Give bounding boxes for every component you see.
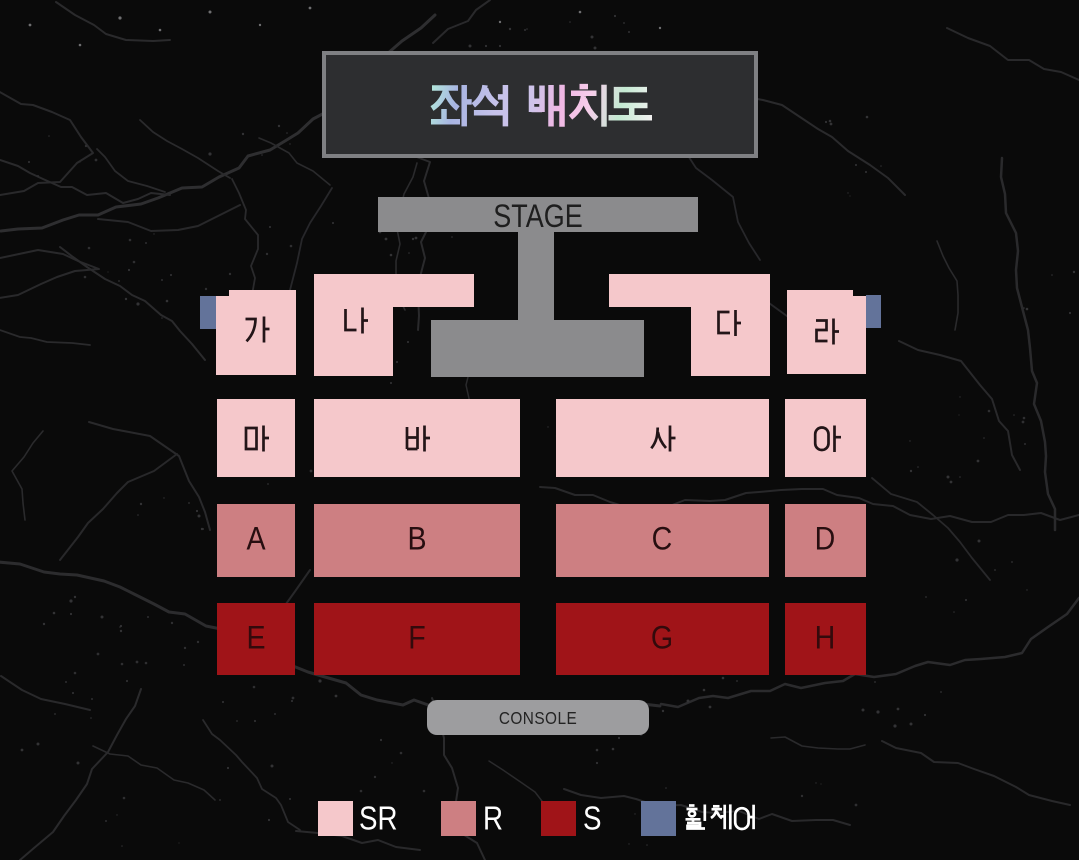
svg-text:B: B xyxy=(407,521,426,557)
svg-text:STAGE: STAGE xyxy=(493,199,582,235)
svg-text:C: C xyxy=(652,521,673,557)
svg-text:H: H xyxy=(815,620,836,656)
svg-text:SR: SR xyxy=(359,800,398,837)
svg-text:R: R xyxy=(483,800,503,837)
svg-text:E: E xyxy=(246,620,265,656)
svg-text:A: A xyxy=(246,521,266,557)
svg-text:F: F xyxy=(408,620,425,656)
svg-text:G: G xyxy=(651,620,673,656)
svg-text:D: D xyxy=(815,521,836,557)
svg-text:CONSOLE: CONSOLE xyxy=(499,709,577,728)
svg-text:S: S xyxy=(583,800,601,837)
